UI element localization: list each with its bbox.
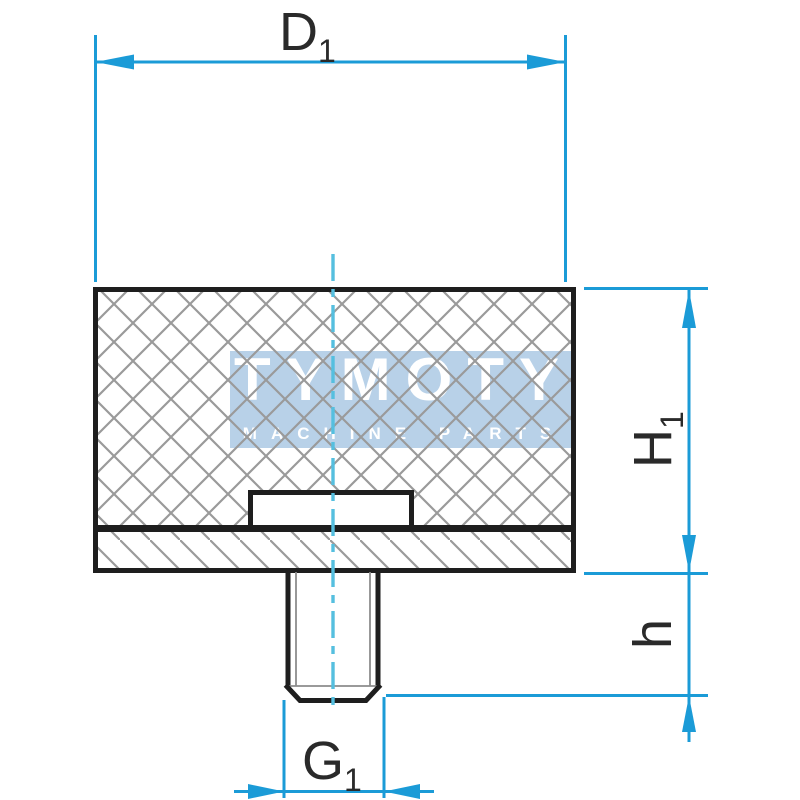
dimension-h: h (386, 574, 708, 743)
d1-label-sub: 1 (318, 33, 336, 69)
h-label-base: h (623, 619, 683, 649)
d1-label: D1 (279, 2, 336, 69)
dimension-d1: D1 (96, 2, 566, 282)
g1-label: G1 (302, 731, 362, 798)
h1-label: H1 (623, 411, 690, 468)
technical-drawing: TYMOTY MACHINE PARTS D1 (0, 0, 800, 800)
g1-label-sub: 1 (344, 762, 362, 798)
g1-arrow-right (384, 784, 420, 799)
rubber-body: TYMOTY MACHINE PARTS (96, 290, 575, 528)
h1-label-sub: 1 (654, 411, 690, 429)
washer-recess (251, 493, 412, 528)
dimension-g1: G1 (234, 697, 434, 799)
d1-label-base: D (279, 2, 318, 62)
h1-arrow-top (682, 290, 696, 328)
d1-arrow-right (527, 55, 566, 70)
h1-label-base: H (623, 429, 683, 468)
h-label: h (623, 619, 683, 649)
h1-arrow-bottom (682, 535, 696, 572)
dimension-h1: H1 (584, 289, 708, 574)
g1-label-base: G (302, 731, 344, 791)
d1-arrow-left (96, 55, 135, 70)
g1-arrow-left (248, 784, 284, 799)
